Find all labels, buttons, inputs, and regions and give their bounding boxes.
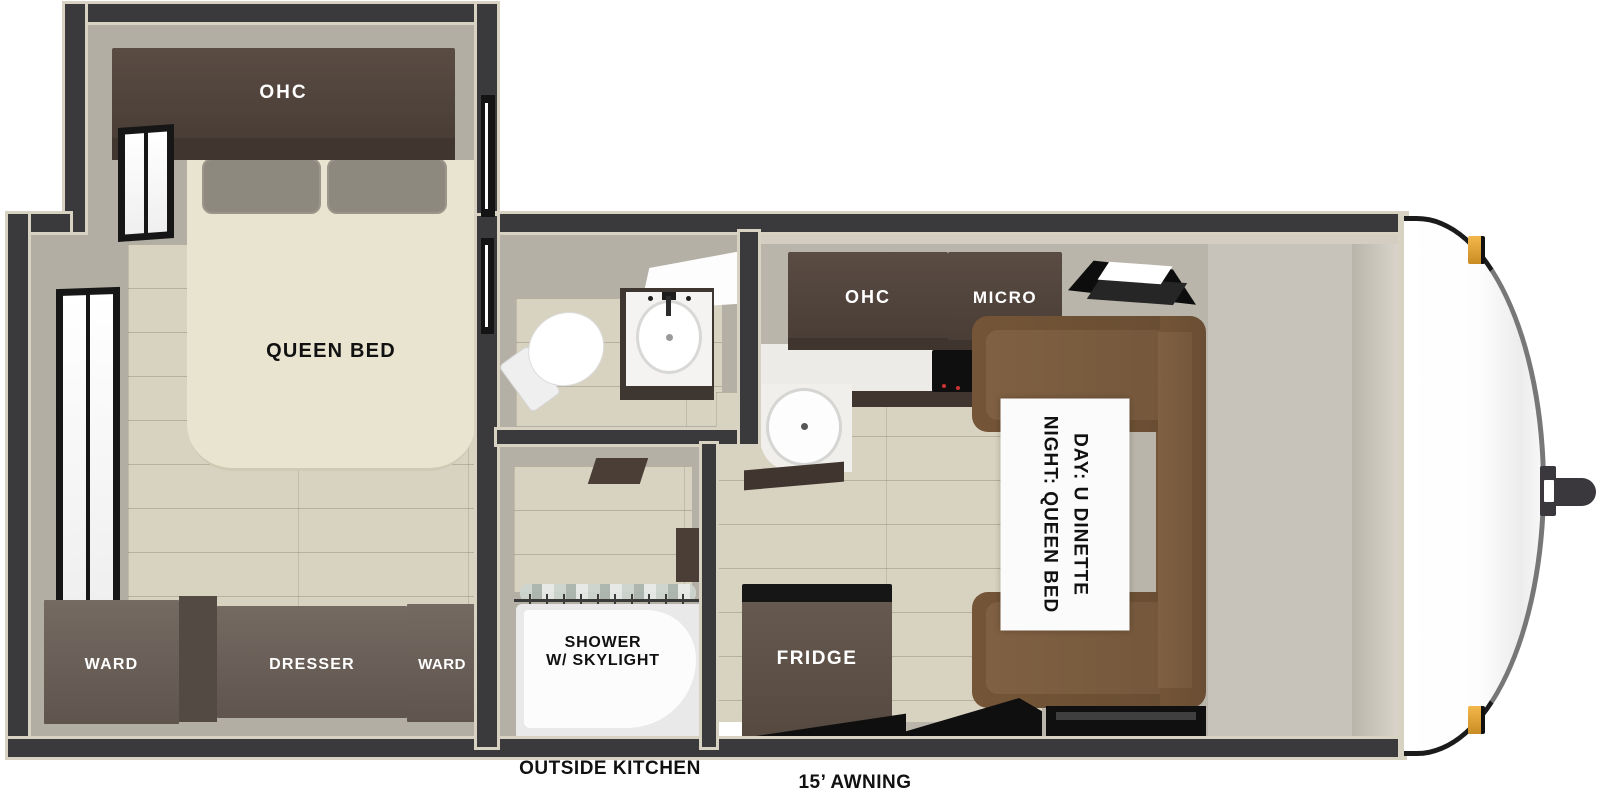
queen-bed-label: QUEEN BED <box>187 340 475 363</box>
bedroom-left-window-icon <box>56 287 120 611</box>
hitch-coupler-arm <box>1552 478 1596 506</box>
wall-bath-shower-divider <box>497 430 758 444</box>
slideout-wall-top <box>65 4 497 22</box>
front-cap <box>1404 216 1546 756</box>
wardrobe-left-side <box>179 596 217 722</box>
slideout-right-window-icon <box>481 95 495 217</box>
vanity-faucet-stem <box>666 296 671 316</box>
front-wall-face <box>1352 244 1404 739</box>
dresser-label: DRESSER <box>217 656 407 674</box>
bedroom-right-window-icon <box>481 238 494 334</box>
kitchen-ohc-label: OHC <box>788 287 948 308</box>
kitchen-wall-face <box>758 232 1404 244</box>
kitchen-ohc-shadow <box>788 338 948 350</box>
dinette-label-line1: DAY: U DINETTE <box>1069 433 1091 596</box>
marker-light-bottom <box>1468 706 1485 734</box>
entry-door-step <box>1046 706 1206 736</box>
dinette-label-line2: NIGHT: QUEEN BED <box>1039 416 1061 614</box>
fridge-top <box>742 584 892 604</box>
fridge-label: FRIDGE <box>742 648 892 670</box>
shower-wood-floor <box>514 466 692 592</box>
wall-bathroom-right <box>740 232 758 444</box>
shower-cabinet-patch-top <box>588 458 648 484</box>
vanity-drain <box>666 334 673 341</box>
microwave-label: MICRO <box>948 288 1062 308</box>
floorplan-canvas: QUEEN BED OHC WARD DRESSER WARD SHOWER W… <box>0 0 1600 796</box>
cooktop-knob-2 <box>956 386 960 390</box>
marker-light-top <box>1468 236 1485 264</box>
wardrobe-right-label: WARD <box>407 656 477 673</box>
dinette-cushion-right <box>1158 332 1192 688</box>
shower-cabinet-patch-right <box>676 528 704 582</box>
kitchen-counter-edge <box>846 391 978 407</box>
pillow-left <box>202 158 321 214</box>
dinette-label-panel: DAY: U DINETTE NIGHT: QUEEN BED <box>1001 399 1130 631</box>
bedroom-ohc-label: OHC <box>112 82 455 104</box>
kitchen-sink-drain <box>801 423 808 430</box>
wall-shower-right <box>702 444 716 747</box>
wall-left <box>8 214 28 757</box>
vanity-handle-right <box>686 296 691 301</box>
awning-label: 15’ AWNING <box>735 772 975 794</box>
outside-kitchen-label: OUTSIDE KITCHEN <box>450 758 770 780</box>
hitch-coupler-notch <box>1544 480 1554 502</box>
slideout-wall-left <box>65 4 85 232</box>
slideout-window-icon <box>118 124 174 242</box>
pillow-right <box>327 158 447 214</box>
shower-label: SHOWER W/ SKYLIGHT <box>523 634 683 671</box>
wall-top-main <box>490 214 1406 232</box>
vanity-handle-left <box>648 296 653 301</box>
cooktop-knob-1 <box>942 384 946 388</box>
wardrobe-left-label: WARD <box>44 656 179 674</box>
